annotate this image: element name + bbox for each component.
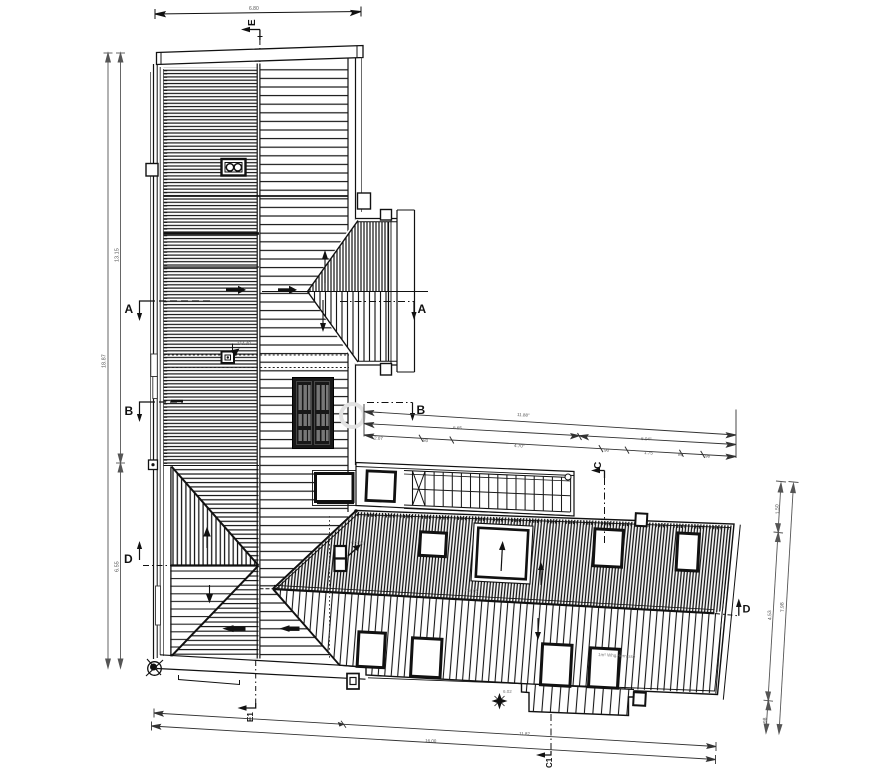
- svg-text:E: E: [247, 19, 258, 26]
- svg-text:6.02: 6.02: [503, 689, 512, 694]
- svg-text:4.53: 4.53: [767, 610, 774, 620]
- svg-text:+14.40: +14.40: [237, 341, 251, 346]
- svg-text:A: A: [125, 302, 134, 316]
- svg-text:11.87: 11.87: [519, 731, 531, 737]
- svg-text:98: 98: [705, 453, 711, 458]
- svg-text:+13.10: +13.10: [350, 540, 365, 546]
- svg-text:90: 90: [604, 448, 610, 453]
- svg-text:+14.05: +14.05: [464, 588, 479, 594]
- svg-text:D: D: [124, 552, 133, 566]
- svg-text:6.65: 6.65: [453, 425, 463, 431]
- svg-text:D: D: [743, 604, 751, 616]
- svg-text:11.88°: 11.88°: [517, 412, 530, 418]
- svg-text:4.70°: 4.70°: [514, 443, 525, 449]
- svg-text:7.98: 7.98: [779, 602, 786, 612]
- svg-text:98: 98: [762, 717, 768, 723]
- svg-text:E1: E1: [246, 712, 255, 722]
- svg-text:1.50: 1.50: [774, 504, 781, 514]
- svg-text:1.75: 1.75: [644, 450, 654, 456]
- svg-text:2.07: 2.07: [374, 436, 384, 442]
- svg-text:C: C: [593, 462, 604, 469]
- svg-text:18.87: 18.87: [102, 354, 108, 368]
- svg-text:80: 80: [423, 438, 429, 443]
- svg-text:A: A: [418, 302, 427, 316]
- svg-text:6.04°: 6.04°: [641, 436, 652, 442]
- svg-text:6.80: 6.80: [249, 6, 259, 12]
- svg-text:80: 80: [678, 452, 684, 457]
- svg-text:C1: C1: [545, 757, 554, 768]
- svg-text:B: B: [125, 404, 134, 418]
- svg-text:6.55: 6.55: [115, 561, 121, 572]
- svg-text:16.00: 16.00: [425, 738, 437, 744]
- svg-text:13.15: 13.15: [115, 248, 121, 262]
